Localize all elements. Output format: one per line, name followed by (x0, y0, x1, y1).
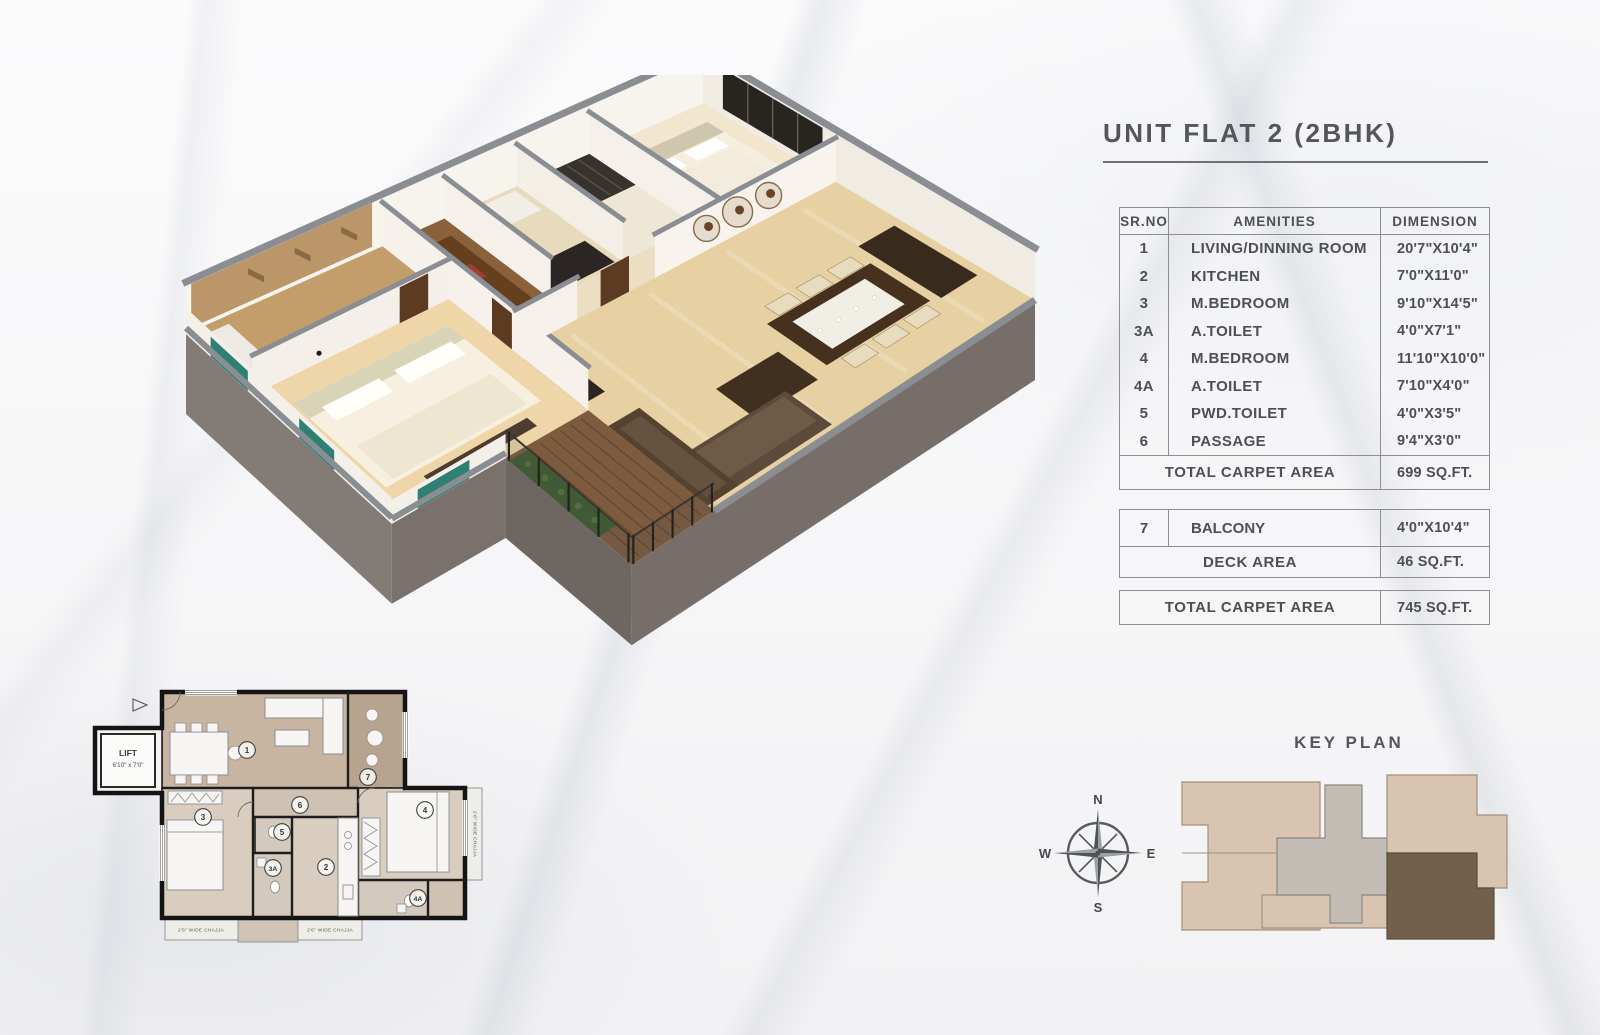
floor-plan-2d: 173653A244A LIFT 6'10" x 7'0" 2'6" WIDE … (85, 650, 485, 950)
amenity-cell: M.BEDROOM (1169, 345, 1381, 373)
dimension-cell: 4'0"X3'5" (1381, 406, 1489, 422)
room-number: 5 (274, 824, 291, 841)
svg-text:3A: 3A (269, 866, 278, 873)
page-title: UNIT FLAT 2 (2BHK) (1103, 118, 1397, 149)
sr-cell: 2 (1120, 263, 1169, 291)
key-plan-diagram (1160, 755, 1520, 955)
svg-text:6: 6 (298, 801, 303, 810)
amenity-cell: A.TOILET (1169, 318, 1381, 346)
amenity-cell: M.BEDROOM (1169, 290, 1381, 318)
amenity-cell: KITCHEN (1169, 263, 1381, 291)
amenities-table: SR.NO AMENITIES DIMENSION 1 LIVING/DINNI… (1119, 207, 1490, 490)
sr-cell: 7 (1120, 510, 1169, 546)
total-value: 699 SQ.FT. (1381, 465, 1489, 481)
compass-star (1054, 809, 1142, 897)
title-divider (1103, 161, 1488, 163)
dimension-cell: 11'10"X10'0" (1381, 351, 1489, 367)
table-row: 5 PWD.TOILET 4'0"X3'5" (1120, 400, 1489, 428)
dimension-cell: 9'4"X3'0" (1381, 433, 1489, 449)
table-row: 4 M.BEDROOM 11'10"X10'0" (1120, 345, 1489, 373)
room-number: 1 (239, 742, 256, 759)
compass-west-label: W (1039, 846, 1052, 861)
dimension-cell: 7'0"X11'0" (1381, 268, 1489, 284)
svg-text:2: 2 (324, 863, 329, 872)
grand-total-row: TOTAL CARPET AREA 745 SQ.FT. (1120, 591, 1489, 624)
amenity-cell: BALCONY (1169, 510, 1381, 546)
room-number: 6 (292, 797, 309, 814)
chajja-label-mid: 2'6" WIDE CHAJJA (307, 928, 354, 934)
sr-cell: 4 (1120, 345, 1169, 373)
dimension-cell: 7'10"X4'0" (1381, 378, 1489, 394)
svg-text:7: 7 (366, 773, 371, 782)
sr-cell: 3 (1120, 290, 1169, 318)
header-amenities: AMENITIES (1169, 208, 1381, 234)
room-number: 4A (410, 890, 427, 907)
header-dimension: DIMENSION (1381, 214, 1489, 229)
compass-east-label: E (1147, 846, 1156, 861)
room-number: 3 (195, 809, 212, 826)
grand-total-value: 745 SQ.FT. (1381, 600, 1489, 616)
amenity-cell: A.TOILET (1169, 373, 1381, 401)
lift-dimension: 6'10" x 7'0" (112, 762, 143, 769)
chajja-label-right: 2'6" WIDE CHAJJA (472, 811, 478, 858)
grand-total-label: TOTAL CARPET AREA (1120, 591, 1381, 624)
room-number: 7 (360, 769, 377, 786)
key-plan-title: KEY PLAN (1249, 733, 1449, 753)
compass-south-label: S (1094, 900, 1103, 915)
brochure-page: 173653A244A LIFT 6'10" x 7'0" 2'6" WIDE … (0, 0, 1600, 1035)
sr-cell: 3A (1120, 318, 1169, 346)
svg-text:4A: 4A (414, 896, 423, 903)
lift-label: LIFT (119, 748, 138, 758)
room-number: 2 (318, 859, 335, 876)
table-row: 4A A.TOILET 7'10"X4'0" (1120, 373, 1489, 401)
svg-text:4: 4 (423, 806, 428, 815)
balcony-row: 7 BALCONY 4'0"X10'4" (1120, 510, 1489, 547)
total-carpet-row: TOTAL CARPET AREA 699 SQ.FT. (1120, 455, 1489, 489)
room-number: 3A (265, 860, 282, 877)
sr-cell: 4A (1120, 373, 1169, 401)
dimension-cell: 4'0"X7'1" (1381, 323, 1489, 339)
table-row: 3 M.BEDROOM 9'10"X14'5" (1120, 290, 1489, 318)
compass-rose-icon: N E S W (1036, 791, 1160, 915)
sr-cell: 1 (1120, 235, 1169, 263)
dimension-cell: 4'0"X10'4" (1381, 520, 1489, 536)
dimension-cell: 9'10"X14'5" (1381, 296, 1489, 312)
deck-area-row: DECK AREA 46 SQ.FT. (1120, 547, 1489, 577)
sr-cell: 5 (1120, 400, 1169, 428)
amenity-cell: PWD.TOILET (1169, 400, 1381, 428)
amenity-cell: LIVING/DINNING ROOM (1169, 235, 1381, 263)
svg-text:1: 1 (245, 746, 250, 755)
total-label: TOTAL CARPET AREA (1120, 456, 1381, 489)
balcony-table: 7 BALCONY 4'0"X10'4" DECK AREA 46 SQ.FT. (1119, 509, 1490, 578)
table-row: 2 KITCHEN 7'0"X11'0" (1120, 263, 1489, 291)
room-number: 4 (417, 802, 434, 819)
amenity-cell: PASSAGE (1169, 428, 1381, 456)
dimension-cell: 20'7"X10'4" (1381, 241, 1489, 257)
table-row: 1 LIVING/DINNING ROOM 20'7"X10'4" (1120, 235, 1489, 263)
header-srno: SR.NO (1120, 208, 1169, 234)
table-row: 3A A.TOILET 4'0"X7'1" (1120, 318, 1489, 346)
compass-north-label: N (1093, 792, 1102, 807)
deck-label: DECK AREA (1120, 547, 1381, 577)
svg-text:5: 5 (280, 828, 285, 837)
svg-text:3: 3 (201, 813, 206, 822)
table-header-row: SR.NO AMENITIES DIMENSION (1120, 208, 1489, 235)
table-row: 6 PASSAGE 9'4"X3'0" (1120, 428, 1489, 456)
chajja-label-left: 2'6" WIDE CHAJJA (178, 928, 225, 934)
grand-total-table: TOTAL CARPET AREA 745 SQ.FT. (1119, 590, 1490, 625)
sr-cell: 6 (1120, 428, 1169, 456)
deck-value: 46 SQ.FT. (1381, 554, 1489, 570)
keyplan-wing-bottom (1262, 895, 1387, 928)
